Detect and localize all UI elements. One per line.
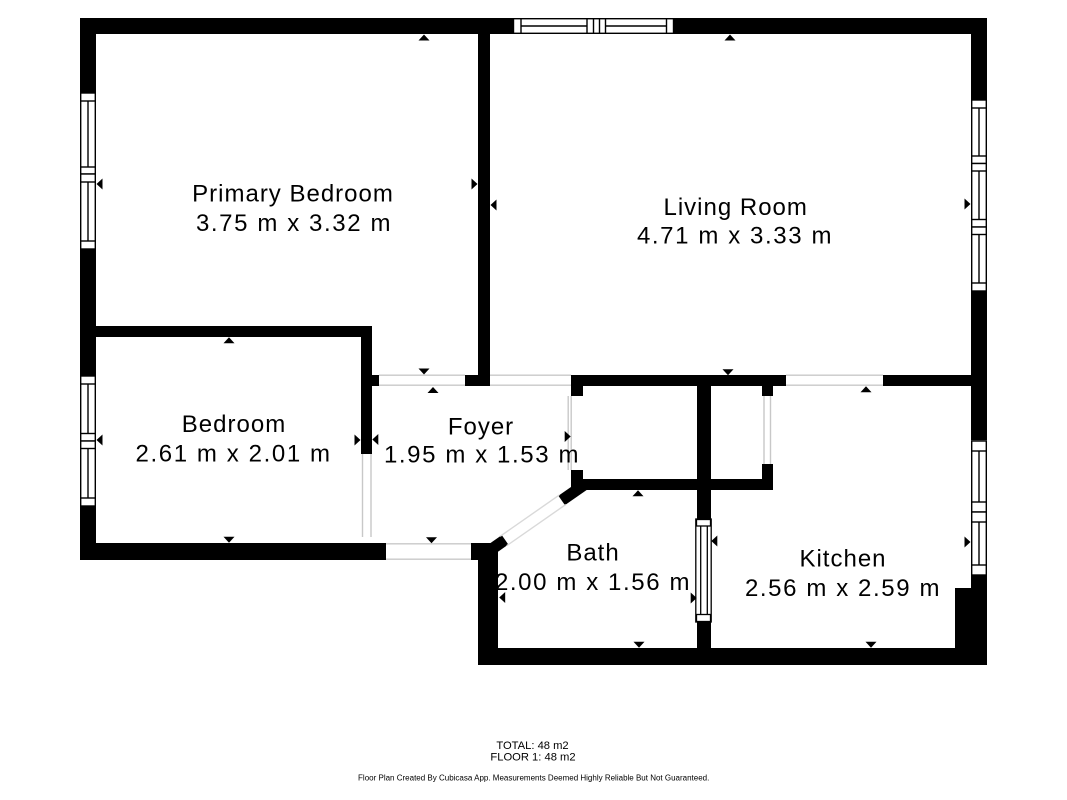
svg-text:1.95 m x 1.53 m: 1.95 m x 1.53 m [384,442,580,469]
svg-text:TOTAL: 48 m2: TOTAL: 48 m2 [496,740,568,752]
svg-text:Living Room: Living Room [663,194,807,221]
svg-text:3.75 m x 3.32 m: 3.75 m x 3.32 m [196,210,392,237]
svg-text:2.61 m x 2.01 m: 2.61 m x 2.01 m [136,441,332,468]
svg-text:Bedroom: Bedroom [182,411,286,438]
svg-text:Bath: Bath [566,540,619,567]
svg-text:4.71 m x 3.33 m: 4.71 m x 3.33 m [637,222,833,249]
svg-text:2.00 m x 1.56 m: 2.00 m x 1.56 m [495,569,691,596]
svg-text:FLOOR 1: 48 m2: FLOOR 1: 48 m2 [490,752,575,764]
svg-text:Primary Bedroom: Primary Bedroom [192,181,394,208]
svg-text:Foyer: Foyer [448,414,514,441]
svg-text:Kitchen: Kitchen [799,546,886,573]
svg-text:2.56 m x 2.59 m: 2.56 m x 2.59 m [745,575,941,602]
svg-text:Floor Plan Created By Cubicasa: Floor Plan Created By Cubicasa App. Meas… [358,774,709,783]
